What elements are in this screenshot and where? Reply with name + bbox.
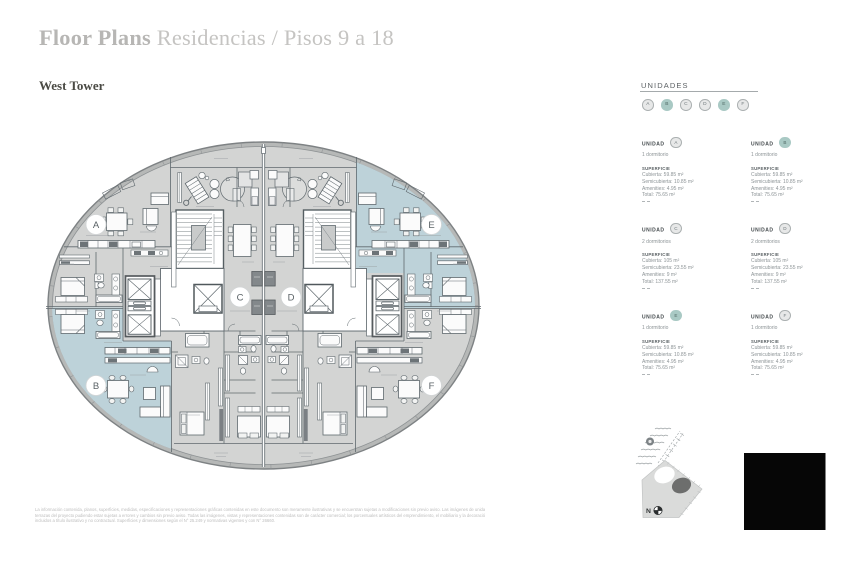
svg-text:N: N — [646, 508, 651, 515]
svg-text:D: D — [288, 293, 295, 304]
svg-text:B: B — [93, 381, 99, 392]
svg-text:E: E — [428, 220, 434, 231]
svg-text:A: A — [93, 220, 100, 231]
svg-text:F: F — [429, 381, 435, 392]
svg-text:C: C — [237, 293, 244, 304]
